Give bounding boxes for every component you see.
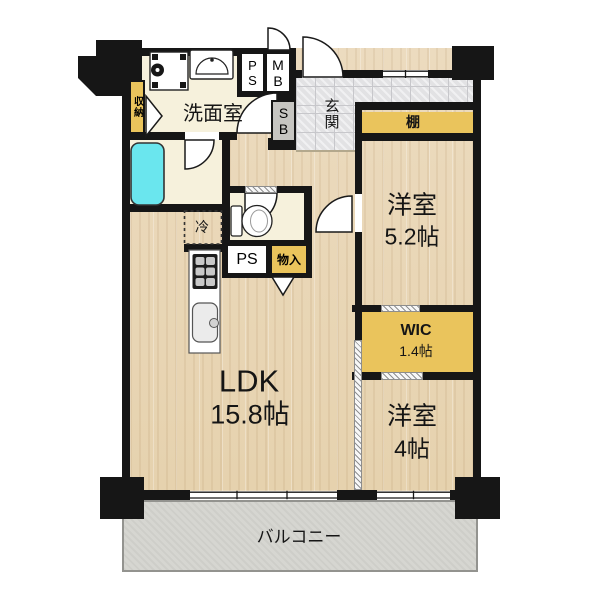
window-bedroom4-balcony bbox=[377, 491, 450, 499]
room-toilet-floor bbox=[230, 193, 304, 240]
label-ldk-name: LDK bbox=[219, 366, 279, 397]
label-washroom: 洗面室 bbox=[183, 104, 243, 124]
room-bathroom-floor bbox=[130, 140, 222, 204]
label-balcony: バルコニー bbox=[257, 529, 342, 546]
opening-toilet-door bbox=[245, 186, 277, 193]
storage-box: 収納 bbox=[129, 80, 145, 134]
pipe-shaft-box: PS bbox=[226, 244, 268, 275]
label-wic-area: 1.4帖 bbox=[399, 344, 432, 358]
storage-label: 収納 bbox=[130, 96, 145, 118]
room-wic-floor bbox=[362, 312, 473, 372]
label-entrance: 玄関 bbox=[324, 98, 339, 130]
sliding-partition-ldk-bedroom4 bbox=[354, 340, 362, 490]
entrance-step-edge bbox=[296, 150, 355, 152]
floor-plan: 収納 PS MB SB PS 物入 洗面室 玄関 棚 洋室 5.2帖 WIC 1… bbox=[0, 0, 600, 600]
shoe-box: SB bbox=[271, 100, 296, 142]
label-ldk-area: 15.8帖 bbox=[210, 402, 290, 429]
label-refrigerator: 冷 bbox=[195, 220, 209, 234]
meter-box-label: MB bbox=[270, 57, 286, 89]
label-shelf: 棚 bbox=[406, 115, 420, 129]
label-bedroom52-area: 5.2帖 bbox=[385, 226, 440, 249]
label-wic-name: WIC bbox=[400, 323, 431, 339]
pipe-shaft-top-label: PS bbox=[245, 58, 260, 88]
opening-wic-bottom bbox=[381, 372, 423, 380]
door-arc-meter-box bbox=[268, 28, 290, 50]
pipe-shaft-label: PS bbox=[236, 251, 257, 269]
closet-box: 物入 bbox=[270, 244, 308, 275]
label-bedroom4-name: 洋室 bbox=[387, 405, 437, 430]
pipe-shaft-top-box: PS bbox=[240, 52, 265, 93]
wall-left bbox=[122, 84, 130, 492]
label-bedroom52-name: 洋室 bbox=[387, 194, 437, 219]
window-ldk-balcony bbox=[190, 491, 337, 499]
wall-right bbox=[473, 76, 481, 492]
closet-label: 物入 bbox=[277, 251, 301, 268]
shoe-box-label: SB bbox=[276, 105, 292, 137]
opening-wic-top bbox=[381, 305, 420, 312]
meter-box: MB bbox=[265, 52, 291, 93]
label-bedroom4-area: 4帖 bbox=[394, 438, 430, 461]
